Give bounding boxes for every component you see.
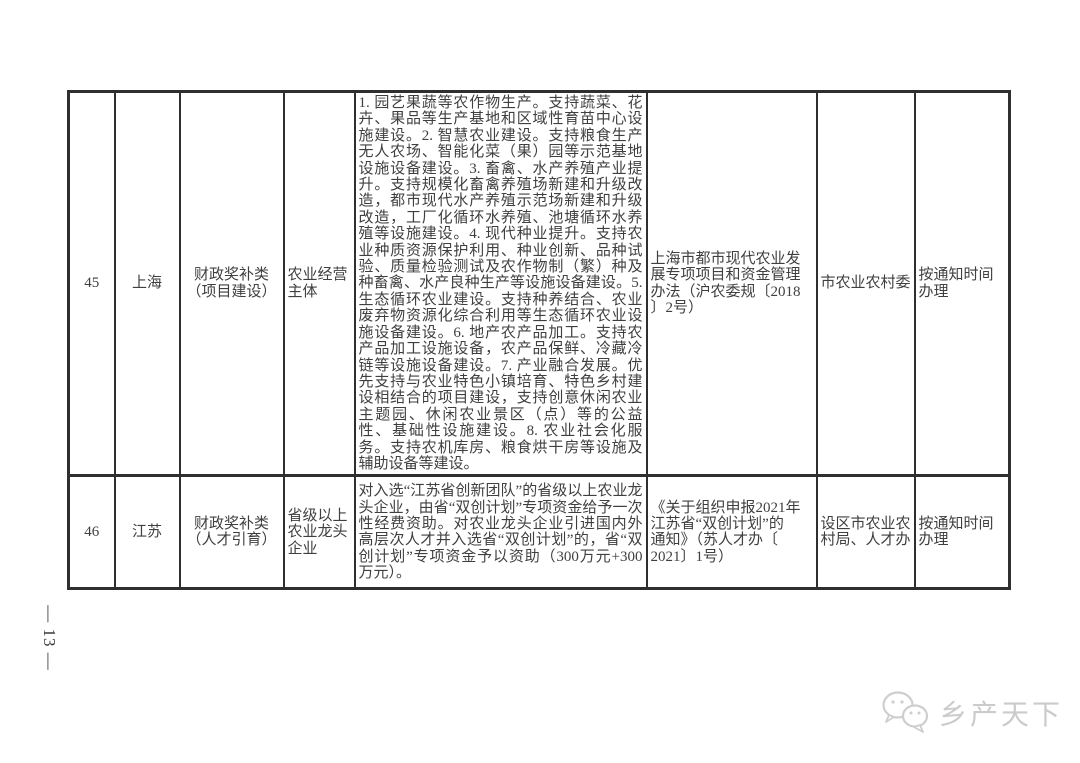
policy-basis-cell: 上海市都市现代农业发 展专项项目和资金管理 办法（沪农委规〔2018 〕2号） xyxy=(647,92,817,476)
serial-cell: 45 xyxy=(69,92,115,476)
page-number: — 13 — xyxy=(39,605,59,671)
watermark-label: 乡产天下 xyxy=(939,693,1063,733)
region-cell: 上海 xyxy=(115,92,180,476)
table-row: 45 上海 财政奖补类 （项目建设） 农业经营 主体 1. 园艺果蔬等农作物生产… xyxy=(69,92,1010,476)
category-cell: 财政奖补类 （项目建设） xyxy=(180,92,284,476)
policy-basis-cell: 《关于组织申报2021年 江苏省“双创计划”的 通知》（苏人才办〔 2021〕1… xyxy=(647,476,817,589)
content-cell: 对入选“江苏省创新团队”的省级以上农业龙头企业，由省“双创计划”专项资金给予一次… xyxy=(355,476,647,589)
policy-table: 45 上海 财政奖补类 （项目建设） 农业经营 主体 1. 园艺果蔬等农作物生产… xyxy=(67,90,1011,590)
subject-cell: 省级以上 农业龙头 企业 xyxy=(284,476,355,589)
handle-time-cell: 按通知时间 办理 xyxy=(915,92,1010,476)
region-cell: 江苏 xyxy=(115,476,180,589)
category-cell: 财政奖补类 （人才引育） xyxy=(180,476,284,589)
table-row: 46 江苏 财政奖补类 （人才引育） 省级以上 农业龙头 企业 对入选“江苏省创… xyxy=(69,476,1010,589)
department-cell: 设区市农业农 村局、人才办 xyxy=(817,476,915,589)
handle-time-cell: 按通知时间 办理 xyxy=(915,476,1010,589)
subject-cell: 农业经营 主体 xyxy=(284,92,355,476)
serial-cell: 46 xyxy=(69,476,115,589)
watermark: 乡产天下 xyxy=(880,690,1063,736)
content-cell: 1. 园艺果蔬等农作物生产。支持蔬菜、花卉、果品等生产基地和区域性育苗中心设施建… xyxy=(355,92,647,476)
department-cell: 市农业农村委 xyxy=(817,92,915,476)
chat-bubbles-icon xyxy=(880,690,932,736)
